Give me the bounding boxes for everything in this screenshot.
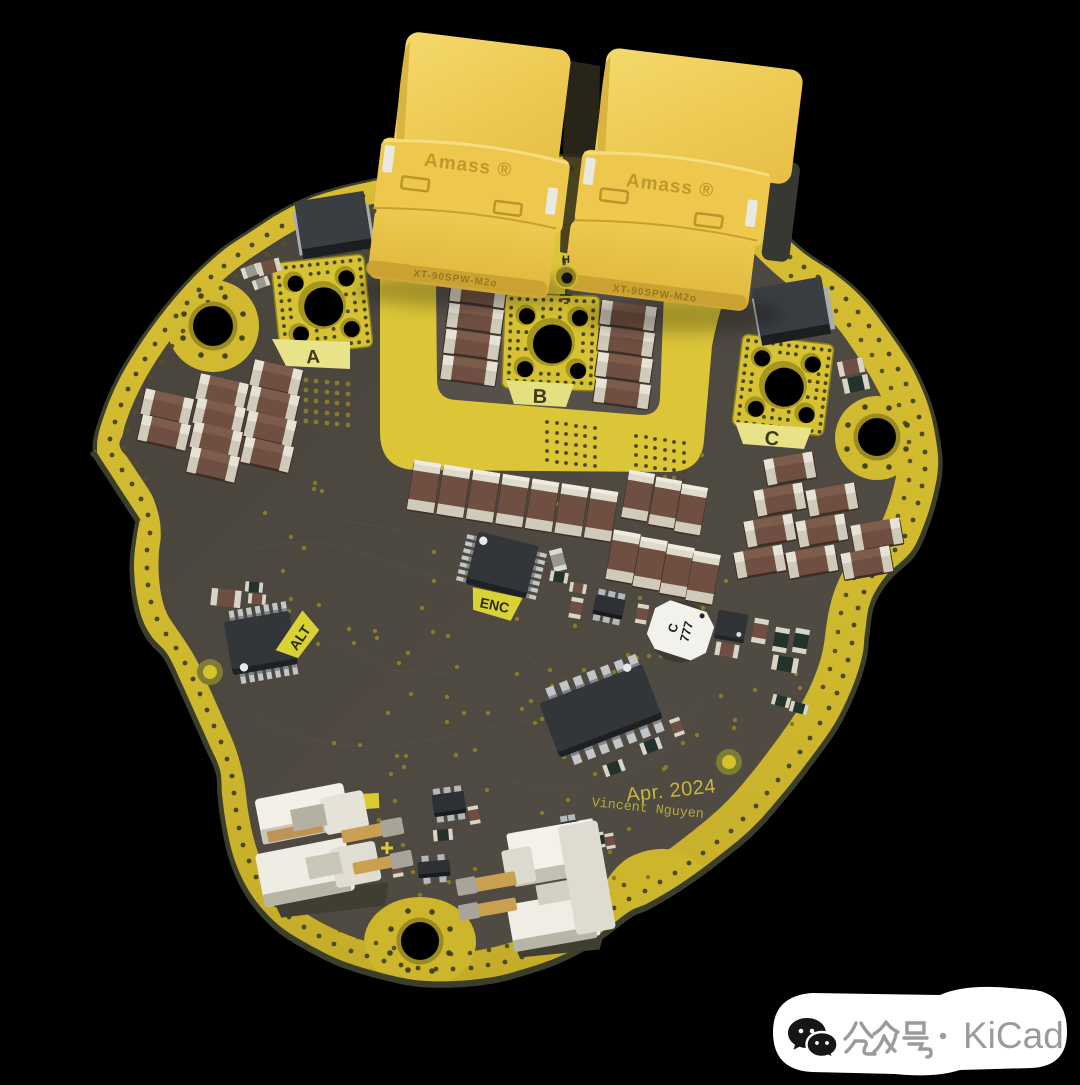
svg-text:H: H — [562, 254, 570, 266]
svg-text:A: A — [306, 347, 321, 369]
svg-text:B: B — [532, 386, 547, 408]
svg-text:KiCad: KiCad — [963, 1015, 1064, 1056]
svg-text:C: C — [764, 427, 780, 450]
